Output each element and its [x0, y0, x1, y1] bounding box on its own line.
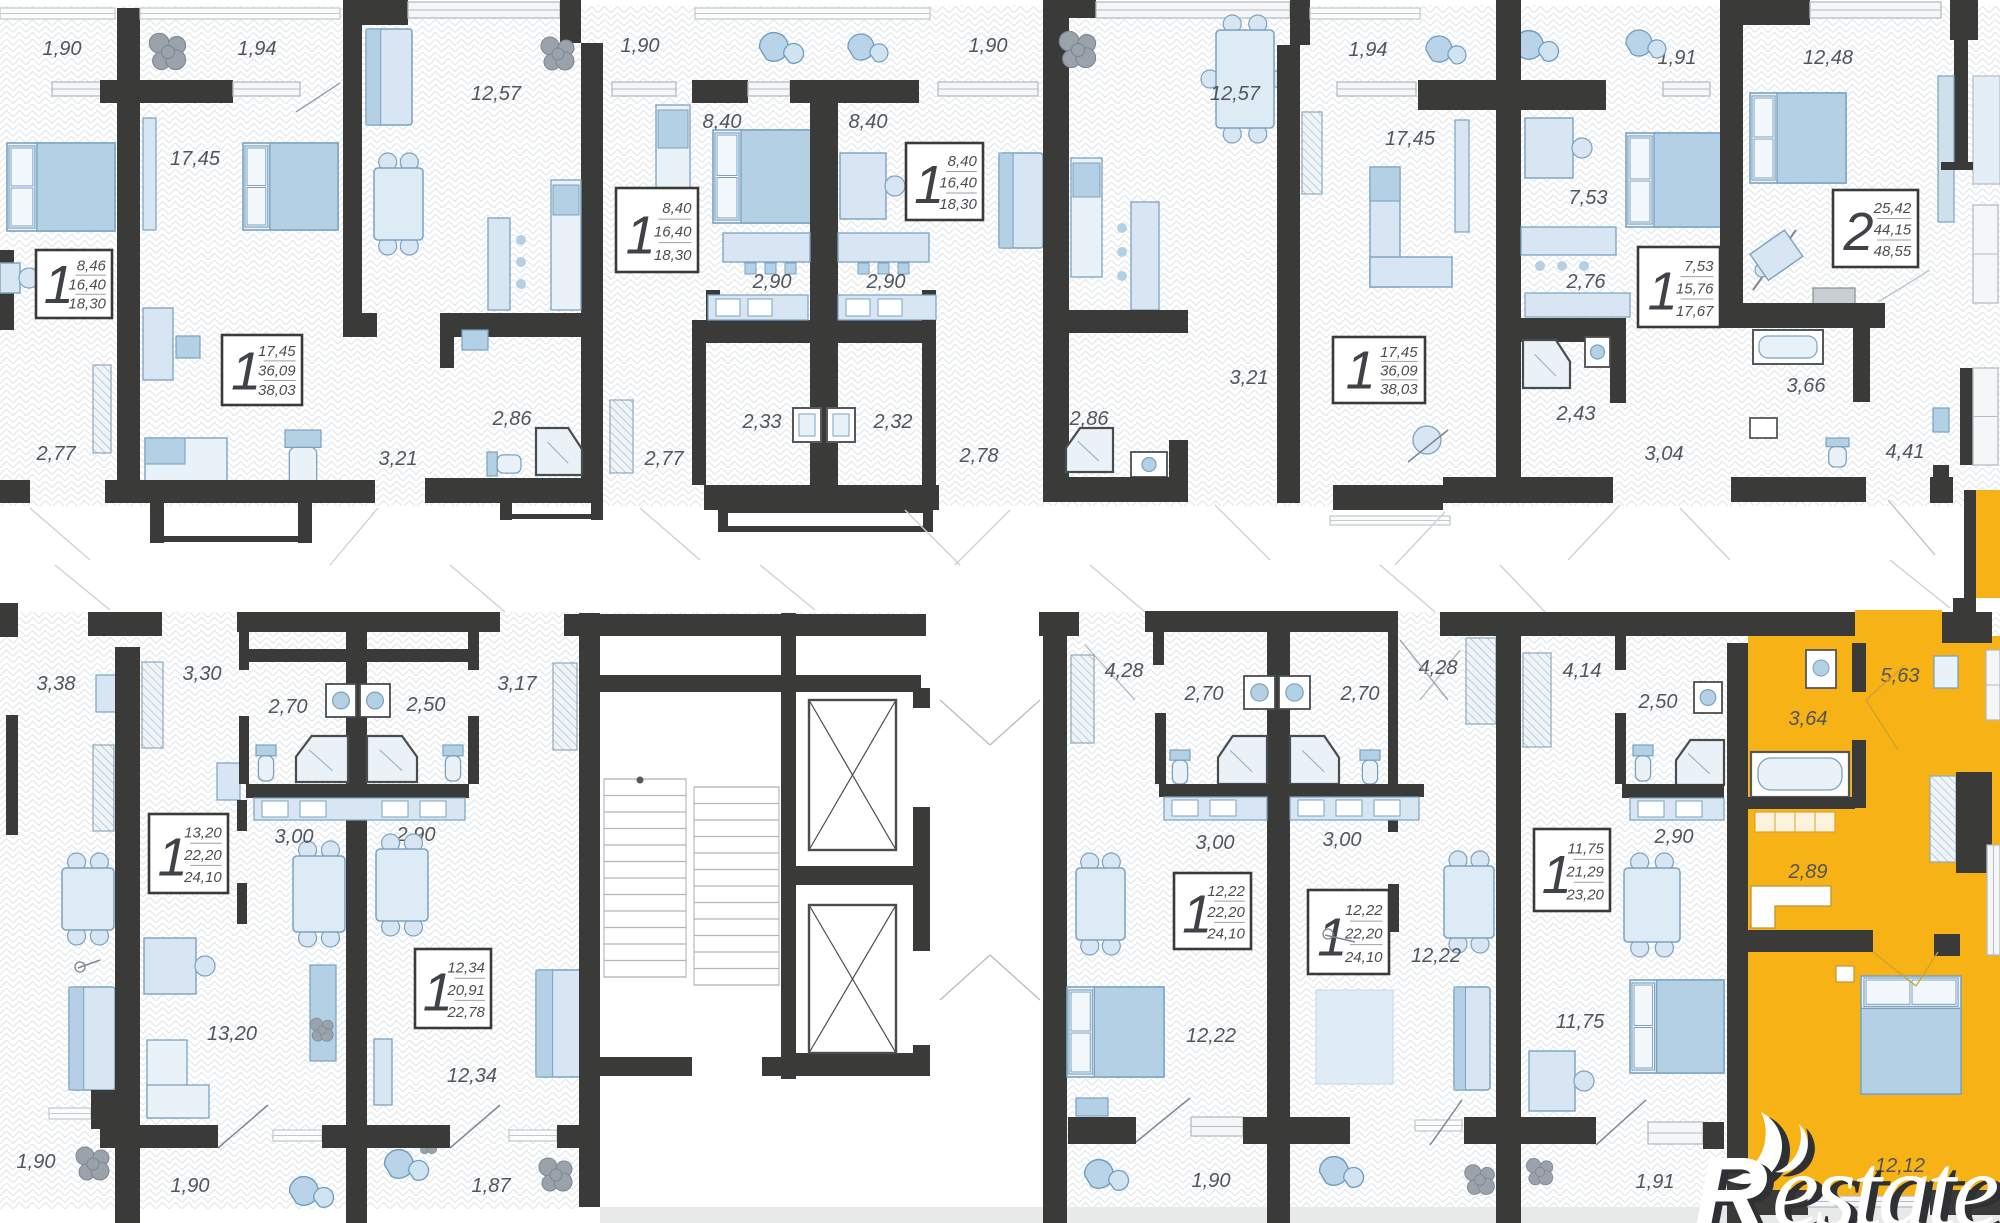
- svg-text:12,22: 12,22: [1186, 1025, 1236, 1047]
- svg-text:1,90: 1,90: [43, 38, 82, 60]
- svg-text:17,45: 17,45: [258, 343, 296, 360]
- svg-text:4,14: 4,14: [1563, 660, 1602, 682]
- svg-text:1,90: 1,90: [171, 1175, 210, 1197]
- svg-text:11,75: 11,75: [1556, 1011, 1605, 1033]
- svg-text:3,66: 3,66: [1787, 375, 1827, 397]
- svg-text:17,45: 17,45: [170, 148, 221, 170]
- svg-text:38,03: 38,03: [1380, 381, 1418, 398]
- svg-text:3,00: 3,00: [1323, 829, 1362, 851]
- svg-text:2,86: 2,86: [1069, 408, 1110, 430]
- svg-text:44,15: 44,15: [1874, 222, 1912, 239]
- svg-text:17,67: 17,67: [1676, 303, 1714, 320]
- svg-text:1: 1: [1648, 261, 1678, 321]
- svg-text:8,40: 8,40: [849, 111, 888, 133]
- svg-text:22,20: 22,20: [183, 847, 222, 864]
- svg-text:13,20: 13,20: [184, 825, 222, 842]
- svg-text:3,38: 3,38: [37, 673, 76, 695]
- svg-text:2,78: 2,78: [959, 445, 999, 467]
- svg-text:22,78: 22,78: [446, 1004, 485, 1021]
- svg-text:8,40: 8,40: [948, 153, 978, 170]
- svg-text:2,77: 2,77: [644, 448, 685, 470]
- svg-text:3,17: 3,17: [498, 673, 538, 695]
- svg-text:1,90: 1,90: [621, 35, 660, 57]
- svg-text:3,00: 3,00: [1196, 832, 1235, 854]
- svg-text:38,03: 38,03: [258, 382, 296, 399]
- svg-text:3,04: 3,04: [1645, 443, 1684, 465]
- svg-text:1,90: 1,90: [969, 35, 1008, 57]
- svg-text:3,30: 3,30: [183, 663, 222, 685]
- svg-text:25,42: 25,42: [1873, 200, 1912, 217]
- svg-text:2,89: 2,89: [1788, 861, 1828, 883]
- svg-text:2,32: 2,32: [873, 411, 913, 433]
- svg-text:2,50: 2,50: [406, 694, 446, 716]
- svg-text:3,21: 3,21: [379, 448, 418, 470]
- svg-text:12,34: 12,34: [447, 960, 485, 977]
- svg-text:48,55: 48,55: [1874, 243, 1912, 260]
- svg-text:8,46: 8,46: [77, 257, 107, 274]
- svg-text:2: 2: [1842, 202, 1873, 262]
- svg-text:12,22: 12,22: [1207, 883, 1245, 900]
- svg-text:2,50: 2,50: [1638, 691, 1678, 713]
- svg-text:1,90: 1,90: [1192, 1170, 1231, 1192]
- svg-text:13,20: 13,20: [207, 1023, 257, 1045]
- svg-text:2,43: 2,43: [1556, 403, 1596, 425]
- svg-text:2,76: 2,76: [1566, 271, 1607, 293]
- svg-text:24,10: 24,10: [1344, 949, 1383, 966]
- svg-text:3,00: 3,00: [275, 826, 314, 848]
- svg-text:15,76: 15,76: [1676, 280, 1714, 297]
- svg-text:1: 1: [626, 206, 656, 266]
- svg-text:36,09: 36,09: [258, 363, 296, 380]
- svg-text:16,40: 16,40: [654, 224, 692, 241]
- svg-text:2,70: 2,70: [1184, 683, 1224, 705]
- svg-text:17,45: 17,45: [1380, 344, 1418, 361]
- svg-text:4,28: 4,28: [1419, 657, 1458, 679]
- svg-text:4,41: 4,41: [1886, 441, 1925, 463]
- svg-text:1: 1: [231, 342, 261, 402]
- svg-text:18,30: 18,30: [939, 196, 977, 213]
- svg-text:17,45: 17,45: [1385, 128, 1436, 150]
- svg-text:3,21: 3,21: [1230, 367, 1269, 389]
- svg-text:16,40: 16,40: [939, 175, 977, 192]
- svg-text:8,40: 8,40: [662, 200, 692, 217]
- svg-text:4,28: 4,28: [1105, 660, 1144, 682]
- svg-text:2,77: 2,77: [36, 443, 77, 465]
- svg-text:1,91: 1,91: [1636, 1171, 1675, 1193]
- svg-text:7,53: 7,53: [1569, 187, 1608, 209]
- svg-text:2,90: 2,90: [1654, 826, 1694, 848]
- svg-text:1,94: 1,94: [238, 38, 277, 60]
- svg-text:5,63: 5,63: [1881, 665, 1920, 687]
- svg-text:22,20: 22,20: [1206, 904, 1245, 921]
- svg-text:12,22: 12,22: [1345, 902, 1383, 919]
- svg-text:12,22: 12,22: [1411, 945, 1461, 967]
- svg-text:36,09: 36,09: [1380, 362, 1418, 379]
- svg-text:7,53: 7,53: [1684, 258, 1714, 275]
- svg-text:2,70: 2,70: [1340, 683, 1380, 705]
- svg-text:16,40: 16,40: [68, 276, 106, 293]
- svg-text:12,48: 12,48: [1803, 47, 1853, 69]
- svg-text:23,20: 23,20: [1565, 887, 1604, 904]
- svg-text:1,87: 1,87: [472, 1175, 512, 1197]
- svg-text:1,90: 1,90: [17, 1151, 56, 1173]
- svg-text:2,70: 2,70: [268, 696, 308, 718]
- svg-text:1,94: 1,94: [1349, 39, 1388, 61]
- svg-text:2,90: 2,90: [866, 271, 906, 293]
- svg-text:24,10: 24,10: [1206, 925, 1245, 942]
- svg-text:1: 1: [1346, 340, 1376, 400]
- svg-text:12,34: 12,34: [447, 1065, 497, 1087]
- svg-text:12,57: 12,57: [471, 83, 522, 105]
- svg-text:11,75: 11,75: [1567, 841, 1604, 858]
- svg-text:18,30: 18,30: [654, 247, 692, 264]
- svg-text:12,57: 12,57: [1210, 83, 1261, 105]
- svg-text:2,90: 2,90: [752, 271, 792, 293]
- svg-text:2,86: 2,86: [492, 408, 533, 430]
- svg-text:2,33: 2,33: [742, 411, 782, 433]
- svg-text:R: R: [1694, 1136, 1768, 1223]
- svg-text:18,30: 18,30: [68, 295, 106, 312]
- svg-text:20,91: 20,91: [446, 982, 485, 999]
- svg-text:3,64: 3,64: [1789, 708, 1828, 730]
- svg-text:24,10: 24,10: [183, 869, 222, 886]
- svg-text:estate: estate: [1772, 1132, 1997, 1223]
- svg-text:21,29: 21,29: [1565, 864, 1604, 881]
